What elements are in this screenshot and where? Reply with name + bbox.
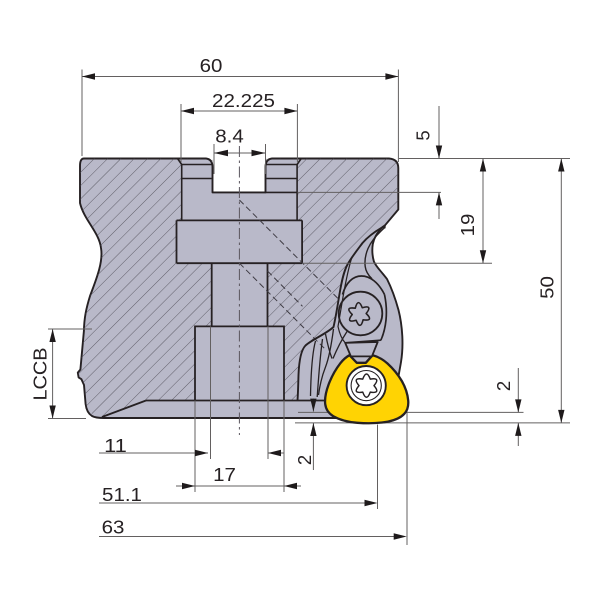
svg-text:8.4: 8.4	[215, 125, 244, 146]
svg-text:22.225: 22.225	[212, 90, 275, 111]
svg-text:51.1: 51.1	[102, 484, 142, 505]
svg-text:2: 2	[493, 381, 514, 391]
svg-text:60: 60	[200, 55, 223, 76]
svg-text:11: 11	[104, 435, 127, 456]
svg-text:50: 50	[537, 276, 558, 299]
svg-text:LCCB: LCCB	[30, 348, 51, 401]
svg-text:5: 5	[413, 130, 434, 140]
svg-text:2: 2	[294, 455, 315, 465]
svg-text:19: 19	[457, 214, 478, 237]
svg-text:63: 63	[102, 517, 125, 538]
svg-text:17: 17	[213, 464, 236, 485]
